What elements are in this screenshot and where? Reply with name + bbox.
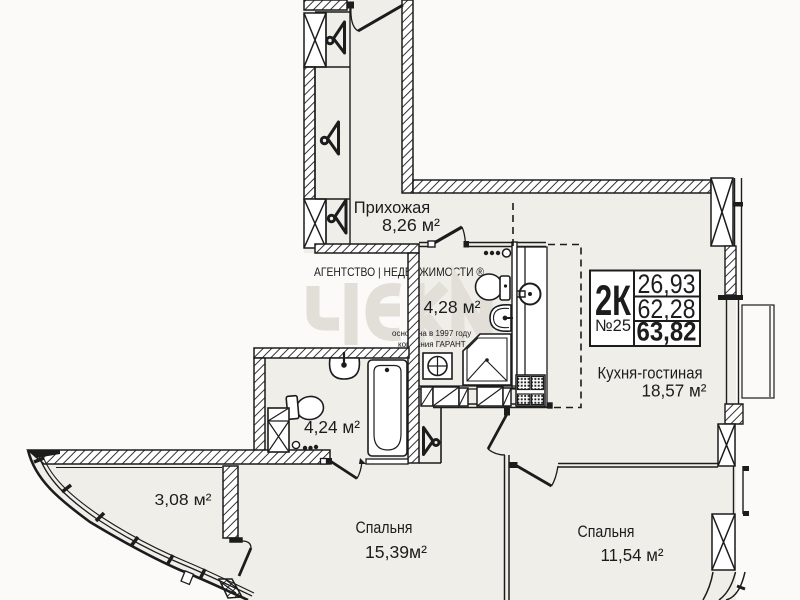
svg-text:№25: №25 xyxy=(595,317,631,335)
svg-text:8,26 м²: 8,26 м² xyxy=(382,215,440,235)
svg-text:18,57 м²: 18,57 м² xyxy=(642,381,707,401)
svg-text:Спальня: Спальня xyxy=(578,523,635,541)
svg-text:3,08 м²: 3,08 м² xyxy=(155,492,213,509)
svg-text:15,39м²: 15,39м² xyxy=(365,542,427,562)
svg-text:11,54 м²: 11,54 м² xyxy=(601,545,664,565)
svg-text:основана в 1997 году: основана в 1997 году xyxy=(392,329,471,338)
svg-text:4,24 м²: 4,24 м² xyxy=(304,417,360,437)
svg-text:4,28 м²: 4,28 м² xyxy=(424,297,481,317)
svg-text:Спальня: Спальня xyxy=(356,519,413,537)
svg-text:63,82: 63,82 xyxy=(637,317,697,347)
